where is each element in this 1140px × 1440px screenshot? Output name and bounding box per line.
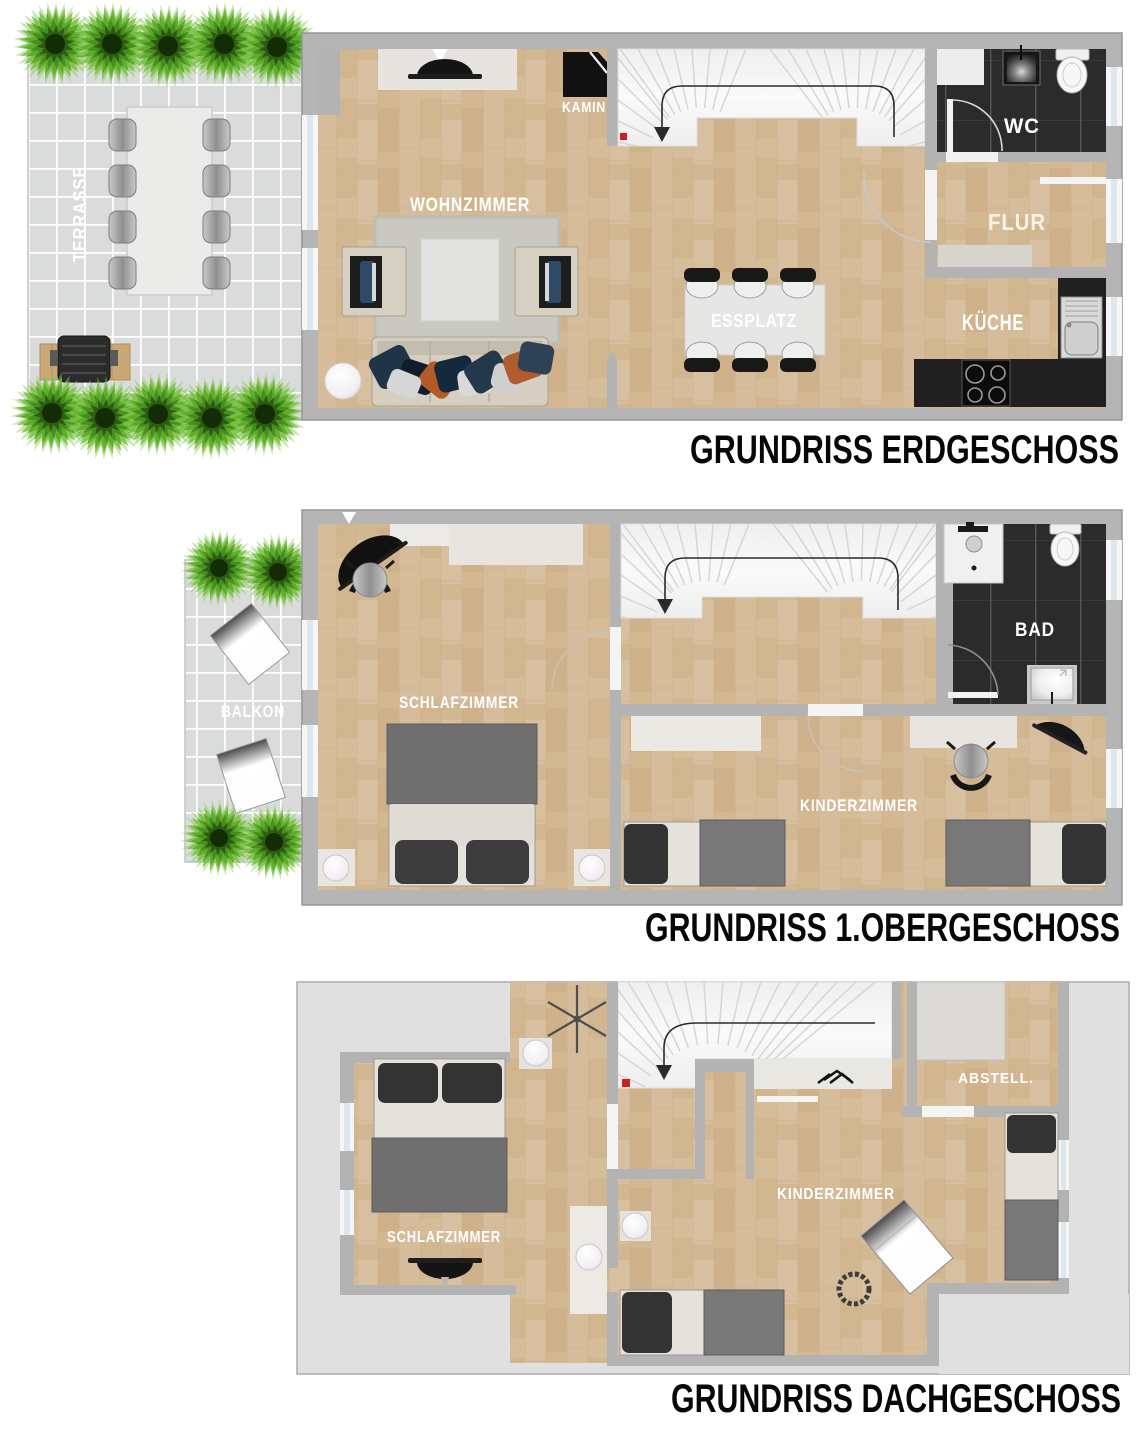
svg-text:BAD: BAD: [1015, 620, 1055, 641]
svg-text:GRUNDRISS ERDGESCHOSS: GRUNDRISS ERDGESCHOSS: [690, 428, 1119, 472]
svg-text:FLUR: FLUR: [988, 209, 1046, 235]
svg-text:SCHLAFZIMMER: SCHLAFZIMMER: [399, 693, 519, 712]
svg-text:ESSPLATZ: ESSPLATZ: [711, 311, 797, 331]
svg-text:ABSTELL.: ABSTELL.: [958, 1070, 1034, 1087]
svg-text:GRUNDRISS DACHGESCHOSS: GRUNDRISS DACHGESCHOSS: [671, 1377, 1121, 1421]
svg-text:KAMIN: KAMIN: [562, 99, 606, 116]
svg-text:GRUNDRISS 1.OBERGESCHOSS: GRUNDRISS 1.OBERGESCHOSS: [645, 906, 1120, 950]
svg-text:KINDERZIMMER: KINDERZIMMER: [800, 796, 918, 815]
svg-text:WC: WC: [1004, 115, 1040, 138]
svg-text:TERRASSE: TERRASSE: [70, 166, 90, 262]
svg-text:KÜCHE: KÜCHE: [962, 310, 1024, 335]
svg-text:BALKON: BALKON: [221, 702, 285, 721]
svg-text:WOHNZIMMER: WOHNZIMMER: [410, 195, 530, 216]
svg-text:SCHLAFZIMMER: SCHLAFZIMMER: [387, 1229, 501, 1246]
svg-text:KINDERZIMMER: KINDERZIMMER: [777, 1186, 895, 1203]
